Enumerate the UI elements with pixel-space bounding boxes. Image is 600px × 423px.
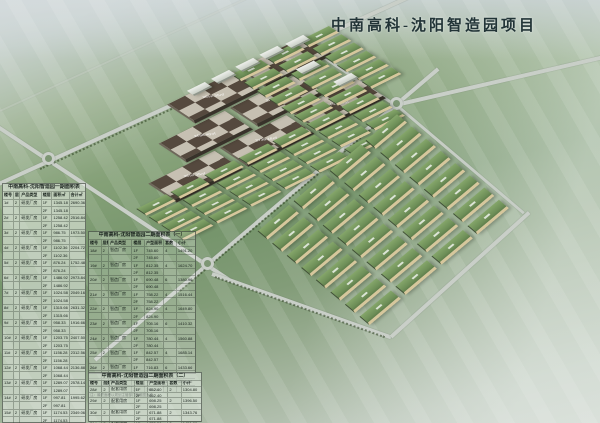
table-row: 12#2研发厂房1F1068.442136.88 <box>3 364 85 372</box>
table-cell <box>167 404 180 409</box>
table-cell: 2F <box>131 284 144 290</box>
table-cell: 1F <box>41 245 52 252</box>
table-cell: 楼号 <box>3 192 13 199</box>
table-cell: 705.16 <box>144 328 163 334</box>
table-cell: 29# <box>89 398 101 403</box>
table-cell: 2F <box>41 207 52 214</box>
table-cell: 1345.18 <box>51 200 68 207</box>
table-cell: 958.33 <box>51 327 68 334</box>
table-cell: 2F <box>41 312 52 319</box>
table-cell: 2 <box>167 410 180 415</box>
table-cell: 2F <box>131 342 144 348</box>
table-cell <box>89 357 101 363</box>
table-row: 2F1102.36 <box>3 251 85 259</box>
table-cell: 2407.50 <box>69 335 85 342</box>
table-cell: 2F <box>131 298 144 304</box>
table-cell: 1F <box>41 365 52 372</box>
table-cell <box>89 269 101 275</box>
table-cell <box>176 298 195 304</box>
table-row: 2F705.16 <box>89 327 195 334</box>
table-cell: 2F <box>41 237 52 244</box>
table-cell: 812.35 <box>144 269 163 275</box>
table-cell: 1024.58 <box>51 290 68 297</box>
table-cell <box>3 387 13 394</box>
table-cell: 958.33 <box>51 320 68 327</box>
table-cell <box>19 327 40 334</box>
table-cell: 1995.62 <box>69 395 85 402</box>
table-cell: 698.25 <box>147 398 167 403</box>
table-cell: 研发厂房 <box>19 350 40 357</box>
table-cell <box>19 312 40 319</box>
table-cell: 1486.92 <box>51 275 68 282</box>
table-cell: 2 <box>101 349 108 355</box>
table-cell: 研发厂房 <box>19 335 40 342</box>
table-cell <box>108 342 131 348</box>
table-cell: 层数 <box>101 240 108 246</box>
table-row: 25#2智造厂房1F842.5741685.14 <box>89 348 195 355</box>
table-cell: 2F <box>41 402 52 409</box>
table-cell: 2690.36 <box>69 200 85 207</box>
table-cell <box>167 393 180 398</box>
table-cell: 4 <box>163 349 176 355</box>
table-cell: 2 <box>101 398 109 403</box>
table-cell: 产品类型 <box>108 240 131 246</box>
table-row: 2F812.35 <box>89 268 195 275</box>
table-row: 26#2智造厂房1F716.8361433.66 <box>89 363 195 370</box>
table-cell: 1396.50 <box>181 398 201 403</box>
table-cell <box>181 416 201 421</box>
table-cell: 2 <box>101 247 108 253</box>
table-cell <box>19 387 40 394</box>
table-cell: 智造厂房 <box>108 291 131 297</box>
table-row: 1#2研发厂房1F1345.182690.36 <box>3 199 85 207</box>
table-cell: 824.90 <box>144 313 163 319</box>
table-cell <box>69 222 85 229</box>
table-cell: 1F <box>41 395 52 402</box>
table-cell: 1156.28 <box>51 350 68 357</box>
table-cell: 2F <box>131 357 144 363</box>
table-cell <box>3 372 13 379</box>
table-cell: 1024.58 <box>51 297 68 304</box>
table-cell: 842.57 <box>144 349 163 355</box>
table-cell <box>163 298 176 304</box>
table-cell <box>69 267 85 274</box>
table-cell <box>167 416 180 421</box>
table-cell: 1289.07 <box>51 387 68 394</box>
table-cell <box>69 402 85 409</box>
table-cell: 智造厂房 <box>108 364 131 370</box>
table-cell <box>108 269 131 275</box>
table-cell: 2204.72 <box>69 245 85 252</box>
table-cell: 1068.44 <box>51 372 68 379</box>
phase2-area-table-2: 中南高科-沈阳智造园二期面积表（二）楼号层数产品类型楼层户型面积套数小计28#2… <box>88 372 202 422</box>
table-cell <box>3 237 13 244</box>
table-cell: 1380.96 <box>176 276 195 282</box>
table-cell: 研发厂房 <box>19 215 40 222</box>
table-row: 2F698.25 <box>89 403 201 409</box>
table-cell: 24# <box>89 335 101 341</box>
table-cell: 997.81 <box>51 395 68 402</box>
table-cell: 4 <box>163 247 176 253</box>
table-cell: 1F <box>41 215 52 222</box>
table-cell: 研发厂房 <box>19 290 40 297</box>
table-row: 楼号层数产品类型楼层户型面积套数小计 <box>89 380 201 386</box>
table-cell: 1973.50 <box>69 230 85 237</box>
table-cell <box>163 313 176 319</box>
table-cell: 户型面积 <box>144 240 163 246</box>
table-cell: 面积㎡ <box>51 192 68 199</box>
table-cell: 2 <box>167 387 180 392</box>
table-cell: 1F <box>131 306 144 312</box>
table-cell <box>19 267 40 274</box>
table-cell <box>108 328 131 334</box>
table-cell: 楼层 <box>41 192 52 199</box>
table-cell: 2F <box>41 222 52 229</box>
table-cell: 690.48 <box>144 284 163 290</box>
table-cell <box>101 404 109 409</box>
table-cell: 1156.28 <box>51 357 68 364</box>
table-row: 2F997.81 <box>3 401 85 409</box>
table-cell: 2 <box>101 276 108 282</box>
table-cell: 研发厂房 <box>19 260 40 267</box>
table-cell: 19# <box>89 262 101 268</box>
table-cell: 楼层 <box>131 240 144 246</box>
table-cell: 研发厂房 <box>19 230 40 237</box>
table-cell: 28# <box>89 387 101 392</box>
table-cell: 配套用房 <box>109 387 134 392</box>
roundabout <box>201 257 214 270</box>
table-cell <box>163 357 176 363</box>
table-cell: 1F <box>41 410 52 417</box>
table-cell: 2 <box>101 387 109 392</box>
table-cell: 997.81 <box>51 402 68 409</box>
table-cell: 1F <box>134 410 147 415</box>
table-cell <box>3 267 13 274</box>
table-cell: 698.25 <box>147 404 167 409</box>
table-cell: 1# <box>3 200 13 207</box>
table-cell: 1916.66 <box>69 320 85 327</box>
rendering-canvas: 2652.35㎡2736.18㎡2652.35㎡2698.40㎡2736.18㎡… <box>0 0 600 423</box>
table-cell <box>101 342 108 348</box>
table-cell: 2 <box>101 262 108 268</box>
table-cell <box>89 298 101 304</box>
table-cell: 2516.84 <box>69 215 85 222</box>
table-cell <box>69 252 85 259</box>
table-row: 2F1203.75 <box>3 341 85 349</box>
table-cell <box>69 372 85 379</box>
table-cell: 1315.66 <box>51 305 68 312</box>
table-row: 15#2研发厂房1F1174.532349.06 <box>3 409 85 417</box>
table-cell: 2 <box>101 291 108 297</box>
table-cell: 层数 <box>101 381 109 386</box>
table-cell: 1174.53 <box>51 410 68 417</box>
table-cell <box>69 327 85 334</box>
table-cell: 1304.80 <box>181 387 201 392</box>
table-cell <box>101 357 108 363</box>
table-cell <box>89 393 101 398</box>
table-cell: 1F <box>131 262 144 268</box>
table-cell: 1516.44 <box>176 291 195 297</box>
table-row: 5#2研发厂房1F876.241752.48 <box>3 259 85 267</box>
table-cell <box>176 255 195 261</box>
table-cell: 2F <box>134 404 147 409</box>
table-cell: 4 <box>163 335 176 341</box>
table-cell <box>163 255 176 261</box>
table-cell: 智造厂房 <box>108 335 131 341</box>
table-cell <box>89 328 101 334</box>
table-cell: 2312.56 <box>69 350 85 357</box>
table-row: 22#2智造厂房1F824.9041649.80 <box>89 305 195 312</box>
project-title: 中南高科-沈阳智造园项目 <box>331 14 571 35</box>
table-row: 楼号层数产品类型楼层户型面积套数小计 <box>89 239 195 246</box>
table-row: 2F824.90 <box>89 312 195 319</box>
table-cell: 1752.48 <box>69 260 85 267</box>
table-cell: 13# <box>3 380 13 387</box>
table-cell: 2F <box>41 342 52 349</box>
table-cell <box>163 342 176 348</box>
table-cell: 5# <box>3 260 13 267</box>
table-row: 13#2研发厂房1F1289.072578.14 <box>3 379 85 387</box>
table-cell <box>176 313 195 319</box>
table-cell <box>176 284 195 290</box>
table-title: 中南高科-沈阳智造园一期面积表 <box>3 184 85 191</box>
table-cell: 4# <box>3 245 13 252</box>
table-cell <box>69 297 85 304</box>
table-row: 2F1174.53 <box>3 416 85 423</box>
table-cell <box>101 416 109 421</box>
table-cell <box>19 237 40 244</box>
roundabout <box>42 152 55 165</box>
table-row: 10#2研发厂房1F1203.752407.50 <box>3 334 85 342</box>
table-cell: 2F <box>41 327 52 334</box>
table-cell: 758.22 <box>144 291 163 297</box>
table-cell: 套数 <box>163 240 176 246</box>
table-cell <box>89 284 101 290</box>
table-cell: 1F <box>131 349 144 355</box>
table-row: 2F745.60 <box>89 254 195 261</box>
table-cell: 1649.80 <box>176 306 195 312</box>
table-cell: 1685.14 <box>176 349 195 355</box>
table-cell: 2349.06 <box>69 410 85 417</box>
table-cell <box>69 207 85 214</box>
table-cell <box>89 313 101 319</box>
table-cell: 2 <box>101 410 109 415</box>
table-cell <box>176 328 195 334</box>
table-cell: 1F <box>131 276 144 282</box>
table-cell: 1203.75 <box>51 342 68 349</box>
table-cell: 1F <box>41 320 52 327</box>
table-cell: 楼号 <box>89 381 101 386</box>
table-cell <box>101 269 108 275</box>
table-row: 7#2研发厂房1F1024.582049.16 <box>3 289 85 297</box>
table-cell: 研发厂房 <box>19 305 40 312</box>
table-row: 2F1486.92 <box>3 281 85 289</box>
table-cell: 1F <box>134 398 147 403</box>
table-cell <box>19 417 40 423</box>
table-cell <box>108 298 131 304</box>
table-cell <box>69 342 85 349</box>
table-cell: 824.90 <box>144 306 163 312</box>
table-cell: 研发厂房 <box>19 395 40 402</box>
table-cell: 1F <box>41 275 52 282</box>
table-cell: 1433.66 <box>176 364 195 370</box>
table-cell: 1343.76 <box>181 410 201 415</box>
table-cell: 6 <box>163 320 176 326</box>
table-cell: 1624.70 <box>176 262 195 268</box>
table-cell: 12# <box>3 365 13 372</box>
table-row: 11#2研发厂房1F1156.282312.56 <box>3 349 85 357</box>
table-cell: 产品类型 <box>109 381 134 386</box>
table-cell <box>89 255 101 261</box>
table-row: 2F671.88 <box>89 415 201 421</box>
table-cell: 1F <box>41 350 52 357</box>
table-cell: 小计 <box>181 381 201 386</box>
table-cell <box>101 393 109 398</box>
table-cell <box>3 312 13 319</box>
table-cell <box>69 312 85 319</box>
table-row: 18#2智造厂房1F745.6041491.20 <box>89 246 195 253</box>
table-cell <box>3 297 13 304</box>
table-row: 2F1258.42 <box>3 221 85 229</box>
phase1-area-table: 中南高科-沈阳智造园一期面积表楼号层数产品类型楼层面积㎡合计㎡1#2研发厂房1F… <box>2 183 86 423</box>
table-cell: 智造厂房 <box>108 320 131 326</box>
table-cell <box>19 342 40 349</box>
table-row: 2F1156.28 <box>3 356 85 364</box>
table-cell <box>163 284 176 290</box>
table-cell: 1F <box>41 305 52 312</box>
table-cell: 2F <box>41 252 52 259</box>
table-cell: 楼号 <box>89 240 101 246</box>
phase2-area-table: 中南高科-沈阳智造园二期面积表（一）楼号层数产品类型楼层户型面积套数小计18#2… <box>88 231 196 374</box>
table-cell: 智造厂房 <box>108 276 131 282</box>
table-cell <box>108 357 131 363</box>
table-cell <box>69 282 85 289</box>
table-row: 2F1289.07 <box>3 386 85 394</box>
table-cell <box>163 269 176 275</box>
table-cell: 合计㎡ <box>69 192 85 199</box>
table-cell: 1068.44 <box>51 365 68 372</box>
table-row: 4#2研发厂房1F1102.362204.72 <box>3 244 85 252</box>
table-cell <box>19 372 40 379</box>
table-cell: 2F <box>41 387 52 394</box>
table-row: 2F842.57 <box>89 356 195 363</box>
table-cell: 2F <box>41 417 52 423</box>
table-cell: 智造厂房 <box>108 306 131 312</box>
table-cell: 2F <box>41 372 52 379</box>
table-cell <box>176 269 195 275</box>
table-cell <box>108 284 131 290</box>
table-cell: 2F <box>131 328 144 334</box>
table-cell <box>3 252 13 259</box>
table-cell <box>89 416 101 421</box>
table-row: 21#2智造厂房1F758.2241516.44 <box>89 290 195 297</box>
table-cell: 21# <box>89 291 101 297</box>
table-cell: 智造厂房 <box>108 349 131 355</box>
table-cell <box>3 342 13 349</box>
table-cell <box>163 328 176 334</box>
table-row: 2F958.33 <box>3 326 85 334</box>
table-cell: 配套用房 <box>109 398 134 403</box>
table-cell: 780.44 <box>144 342 163 348</box>
table-row: 28#2配套用房1F652.4021304.80 <box>89 386 201 392</box>
table-cell <box>69 417 85 423</box>
table-cell: 2 <box>167 398 180 403</box>
table-cell: 6 <box>163 276 176 282</box>
table-cell: 10# <box>3 335 13 342</box>
table-cell: 智造厂房 <box>108 262 131 268</box>
table-cell <box>3 402 13 409</box>
table-cell: 2F <box>41 282 52 289</box>
table-cell: 2F <box>41 297 52 304</box>
table-row: 2F780.44 <box>89 341 195 348</box>
table-cell <box>181 404 201 409</box>
table-cell: 1F <box>41 260 52 267</box>
table-row: 29#2配套用房1F698.2521396.50 <box>89 397 201 403</box>
table-cell: 研发厂房 <box>19 200 40 207</box>
table-cell: 986.75 <box>51 237 68 244</box>
table-cell: 745.60 <box>144 247 163 253</box>
table-cell: 2F <box>131 255 144 261</box>
table-cell: 1258.42 <box>51 215 68 222</box>
table-cell: 876.24 <box>51 260 68 267</box>
table-cell: 9# <box>3 320 13 327</box>
table-cell: 842.57 <box>144 357 163 363</box>
table-cell: 6 <box>163 364 176 370</box>
table-cell: 671.88 <box>147 410 167 415</box>
table-cell: 2F <box>131 313 144 319</box>
table-cell: 智造厂房 <box>108 247 131 253</box>
table-cell: 1F <box>41 200 52 207</box>
table-row: 14#2研发厂房1F997.811995.62 <box>3 394 85 402</box>
table-cell: 7# <box>3 290 13 297</box>
table-cell: 2 <box>101 335 108 341</box>
table-cell: 1102.36 <box>51 245 68 252</box>
table-cell <box>69 357 85 364</box>
table-cell: 小计 <box>176 240 195 246</box>
table-cell <box>181 393 201 398</box>
table-cell: 25# <box>89 349 101 355</box>
table-cell <box>3 282 13 289</box>
table-cell: 1410.32 <box>176 320 195 326</box>
table-cell <box>89 342 101 348</box>
table-cell: 1258.42 <box>51 222 68 229</box>
table-cell <box>101 328 108 334</box>
table-row: 23#2智造厂房1F705.1661410.32 <box>89 319 195 326</box>
table-row: 2F652.40 <box>89 392 201 398</box>
table-row: 2F1345.18 <box>3 206 85 214</box>
table-cell: 26# <box>89 364 101 370</box>
table-cell: 876.24 <box>51 267 68 274</box>
table-cell: 2 <box>101 306 108 312</box>
table-cell: 产品类型 <box>19 192 40 199</box>
table-row: 2F986.75 <box>3 236 85 244</box>
table-cell: 1315.66 <box>51 312 68 319</box>
table-cell <box>19 297 40 304</box>
table-cell <box>89 404 101 409</box>
table-cell: 研发厂房 <box>19 320 40 327</box>
table-cell: 652.40 <box>147 387 167 392</box>
table-cell: 3# <box>3 230 13 237</box>
table-cell <box>19 207 40 214</box>
table-cell: 研发厂房 <box>19 410 40 417</box>
table-cell <box>19 402 40 409</box>
table-cell: 4 <box>163 306 176 312</box>
table-cell: 1F <box>131 364 144 370</box>
table-cell <box>109 404 134 409</box>
table-cell: 671.88 <box>147 416 167 421</box>
table-cell: 652.40 <box>147 393 167 398</box>
table-cell: 1174.53 <box>51 417 68 423</box>
